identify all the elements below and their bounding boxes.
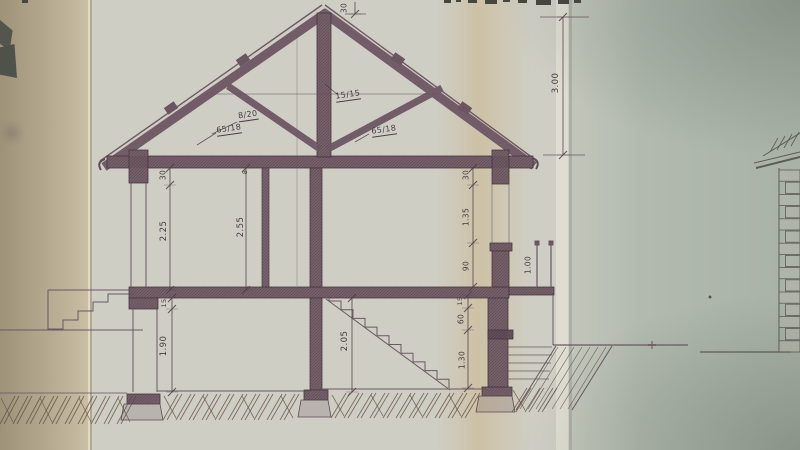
dim-basement-right-lower: 1.30	[458, 351, 466, 369]
label-rafter: 8/20	[238, 110, 259, 123]
label-strut-right: 65/18	[371, 124, 397, 137]
scanned-drawing: 30 3.00 8/20 65/18 15/15 65/18 30 2.25 8…	[0, 0, 800, 450]
dim-basement-right-slab: 15	[457, 296, 464, 305]
dim-basement-left-slab: 15	[161, 298, 168, 307]
label-king-post: 15/15	[335, 89, 361, 102]
dim-roof-height: 3.00	[552, 73, 561, 94]
dim-left-lintel: 30	[159, 170, 167, 180]
dim-storey-height: 2.55	[237, 217, 246, 238]
dim-basement-mid-height: 2.05	[341, 331, 350, 352]
dim-railing-height: 1.00	[524, 256, 532, 274]
dim-basement-left-height: 1.90	[160, 336, 169, 357]
dim-window-height: 1.35	[462, 208, 470, 226]
dim-left-slab: 8	[242, 170, 249, 175]
dim-right-lintel: 30	[462, 170, 470, 180]
dim-parapet: 90	[462, 261, 470, 271]
dim-left-opening: 2.25	[160, 221, 169, 242]
label-strut-left: 65/18	[216, 123, 242, 136]
dim-basement-right-upper: 60	[457, 314, 465, 324]
dim-ridge-depth: 30	[340, 3, 348, 13]
labels: 30 3.00 8/20 65/18 15/15 65/18 30 2.25 8…	[0, 0, 800, 450]
